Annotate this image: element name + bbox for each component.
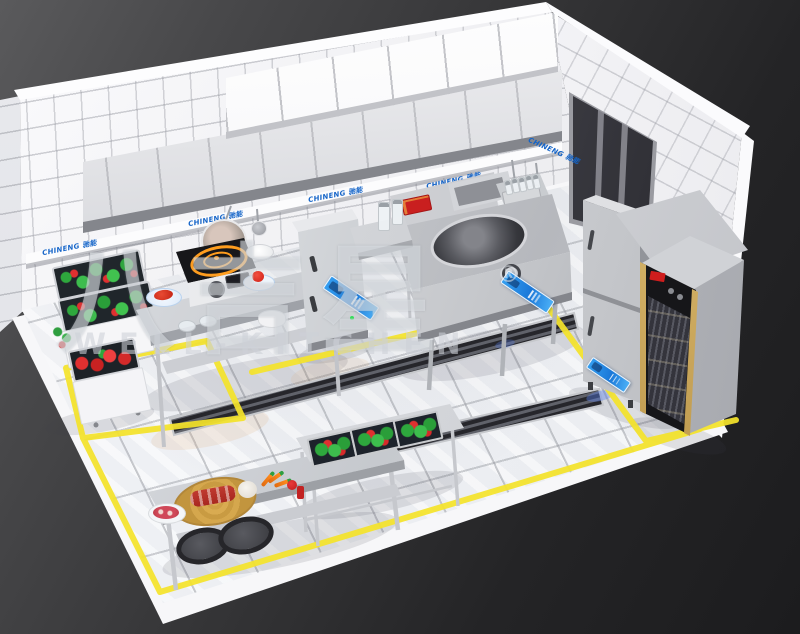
watermark-registered-mark: ® [497, 262, 520, 288]
fridge-foot [628, 400, 633, 408]
salami-slices [153, 506, 179, 519]
red-bottle [297, 486, 304, 499]
kitchen-render-scene: CHINENG 驰能 CHINENG 驰能 CHINENG 驰能 CHINENG… [0, 0, 800, 634]
cabinet-dial [677, 294, 683, 300]
condiment-bottle [378, 202, 390, 231]
condiment-bottle [392, 199, 403, 225]
cabinet-dial [668, 288, 674, 294]
red-pepper [287, 480, 297, 490]
watermark-brand-latin: WELL-KITCHEN [74, 330, 473, 359]
dough-ball [238, 481, 257, 498]
rack-foot [94, 423, 99, 428]
fridge-foot [588, 382, 593, 390]
